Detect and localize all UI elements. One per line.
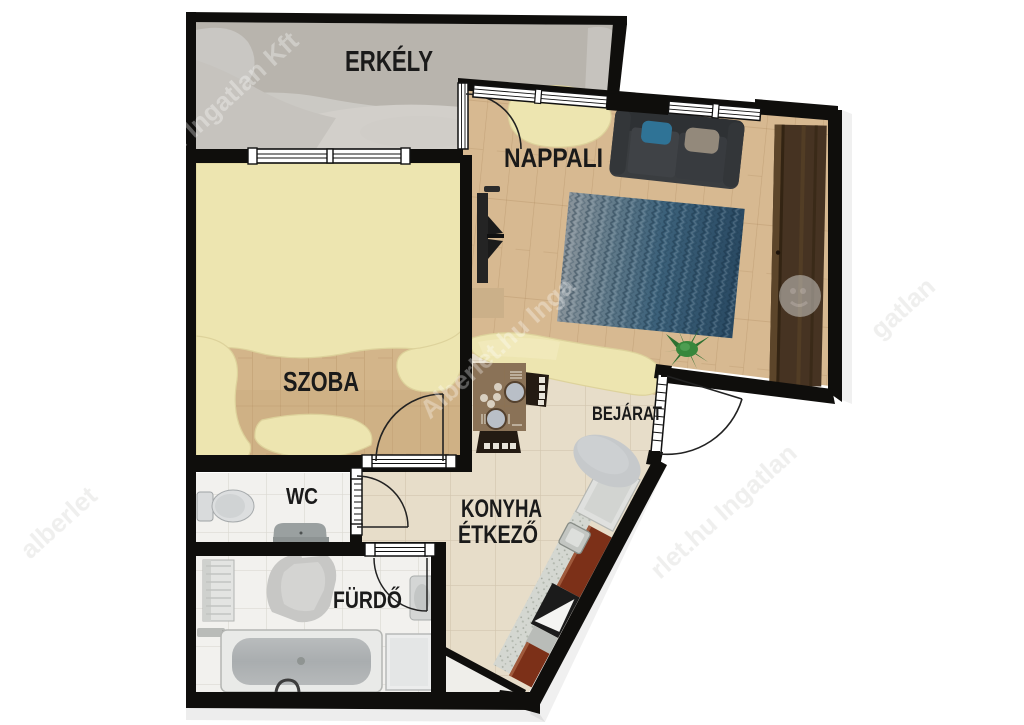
svg-text:WC: WC (286, 483, 318, 509)
svg-text:KONYHA: KONYHA (461, 495, 542, 523)
svg-text:FÜRDŐ: FÜRDŐ (333, 586, 402, 614)
svg-text:SZOBA: SZOBA (283, 366, 359, 397)
svg-text:BEJÁRAT: BEJÁRAT (592, 403, 662, 425)
svg-text:ÉTKEZŐ: ÉTKEZŐ (458, 520, 538, 549)
svg-text:NAPPALI: NAPPALI (504, 143, 603, 173)
svg-text:ERKÉLY: ERKÉLY (345, 44, 433, 78)
